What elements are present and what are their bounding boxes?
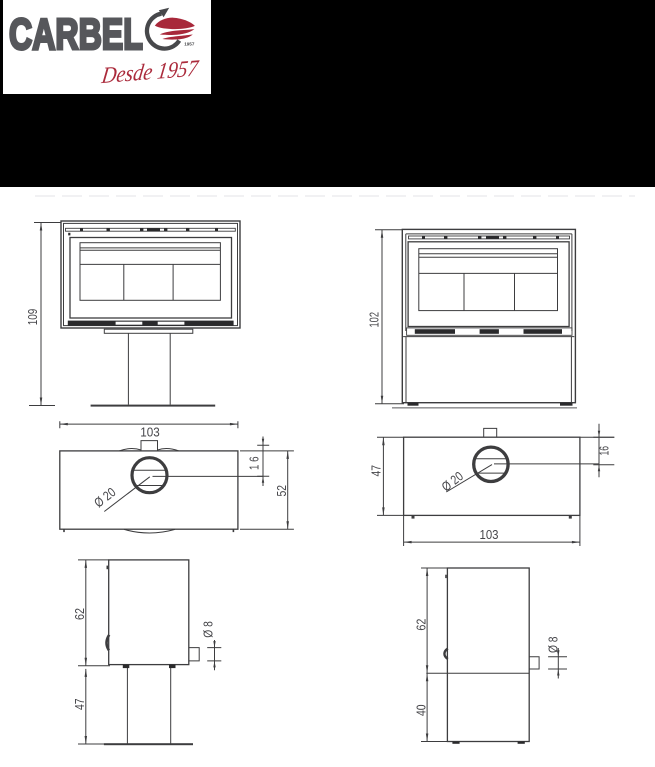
- svg-text:47: 47: [369, 465, 384, 477]
- svg-text:103: 103: [480, 527, 499, 542]
- svg-text:Ø 8: Ø 8: [546, 637, 561, 654]
- svg-text:40: 40: [414, 705, 429, 717]
- svg-text:1 6: 1 6: [247, 457, 262, 471]
- svg-text:16: 16: [597, 446, 612, 456]
- svg-text:62: 62: [414, 619, 429, 631]
- svg-text:Ø 8: Ø 8: [201, 621, 216, 638]
- svg-text:103: 103: [140, 424, 160, 439]
- svg-text:52: 52: [274, 485, 289, 497]
- svg-text:109: 109: [25, 309, 40, 326]
- svg-text:Ø 20: Ø 20: [439, 468, 466, 494]
- svg-text:62: 62: [72, 608, 87, 620]
- svg-text:Ø 20: Ø 20: [91, 484, 118, 510]
- svg-text:102: 102: [367, 312, 382, 328]
- svg-text:47: 47: [72, 699, 87, 711]
